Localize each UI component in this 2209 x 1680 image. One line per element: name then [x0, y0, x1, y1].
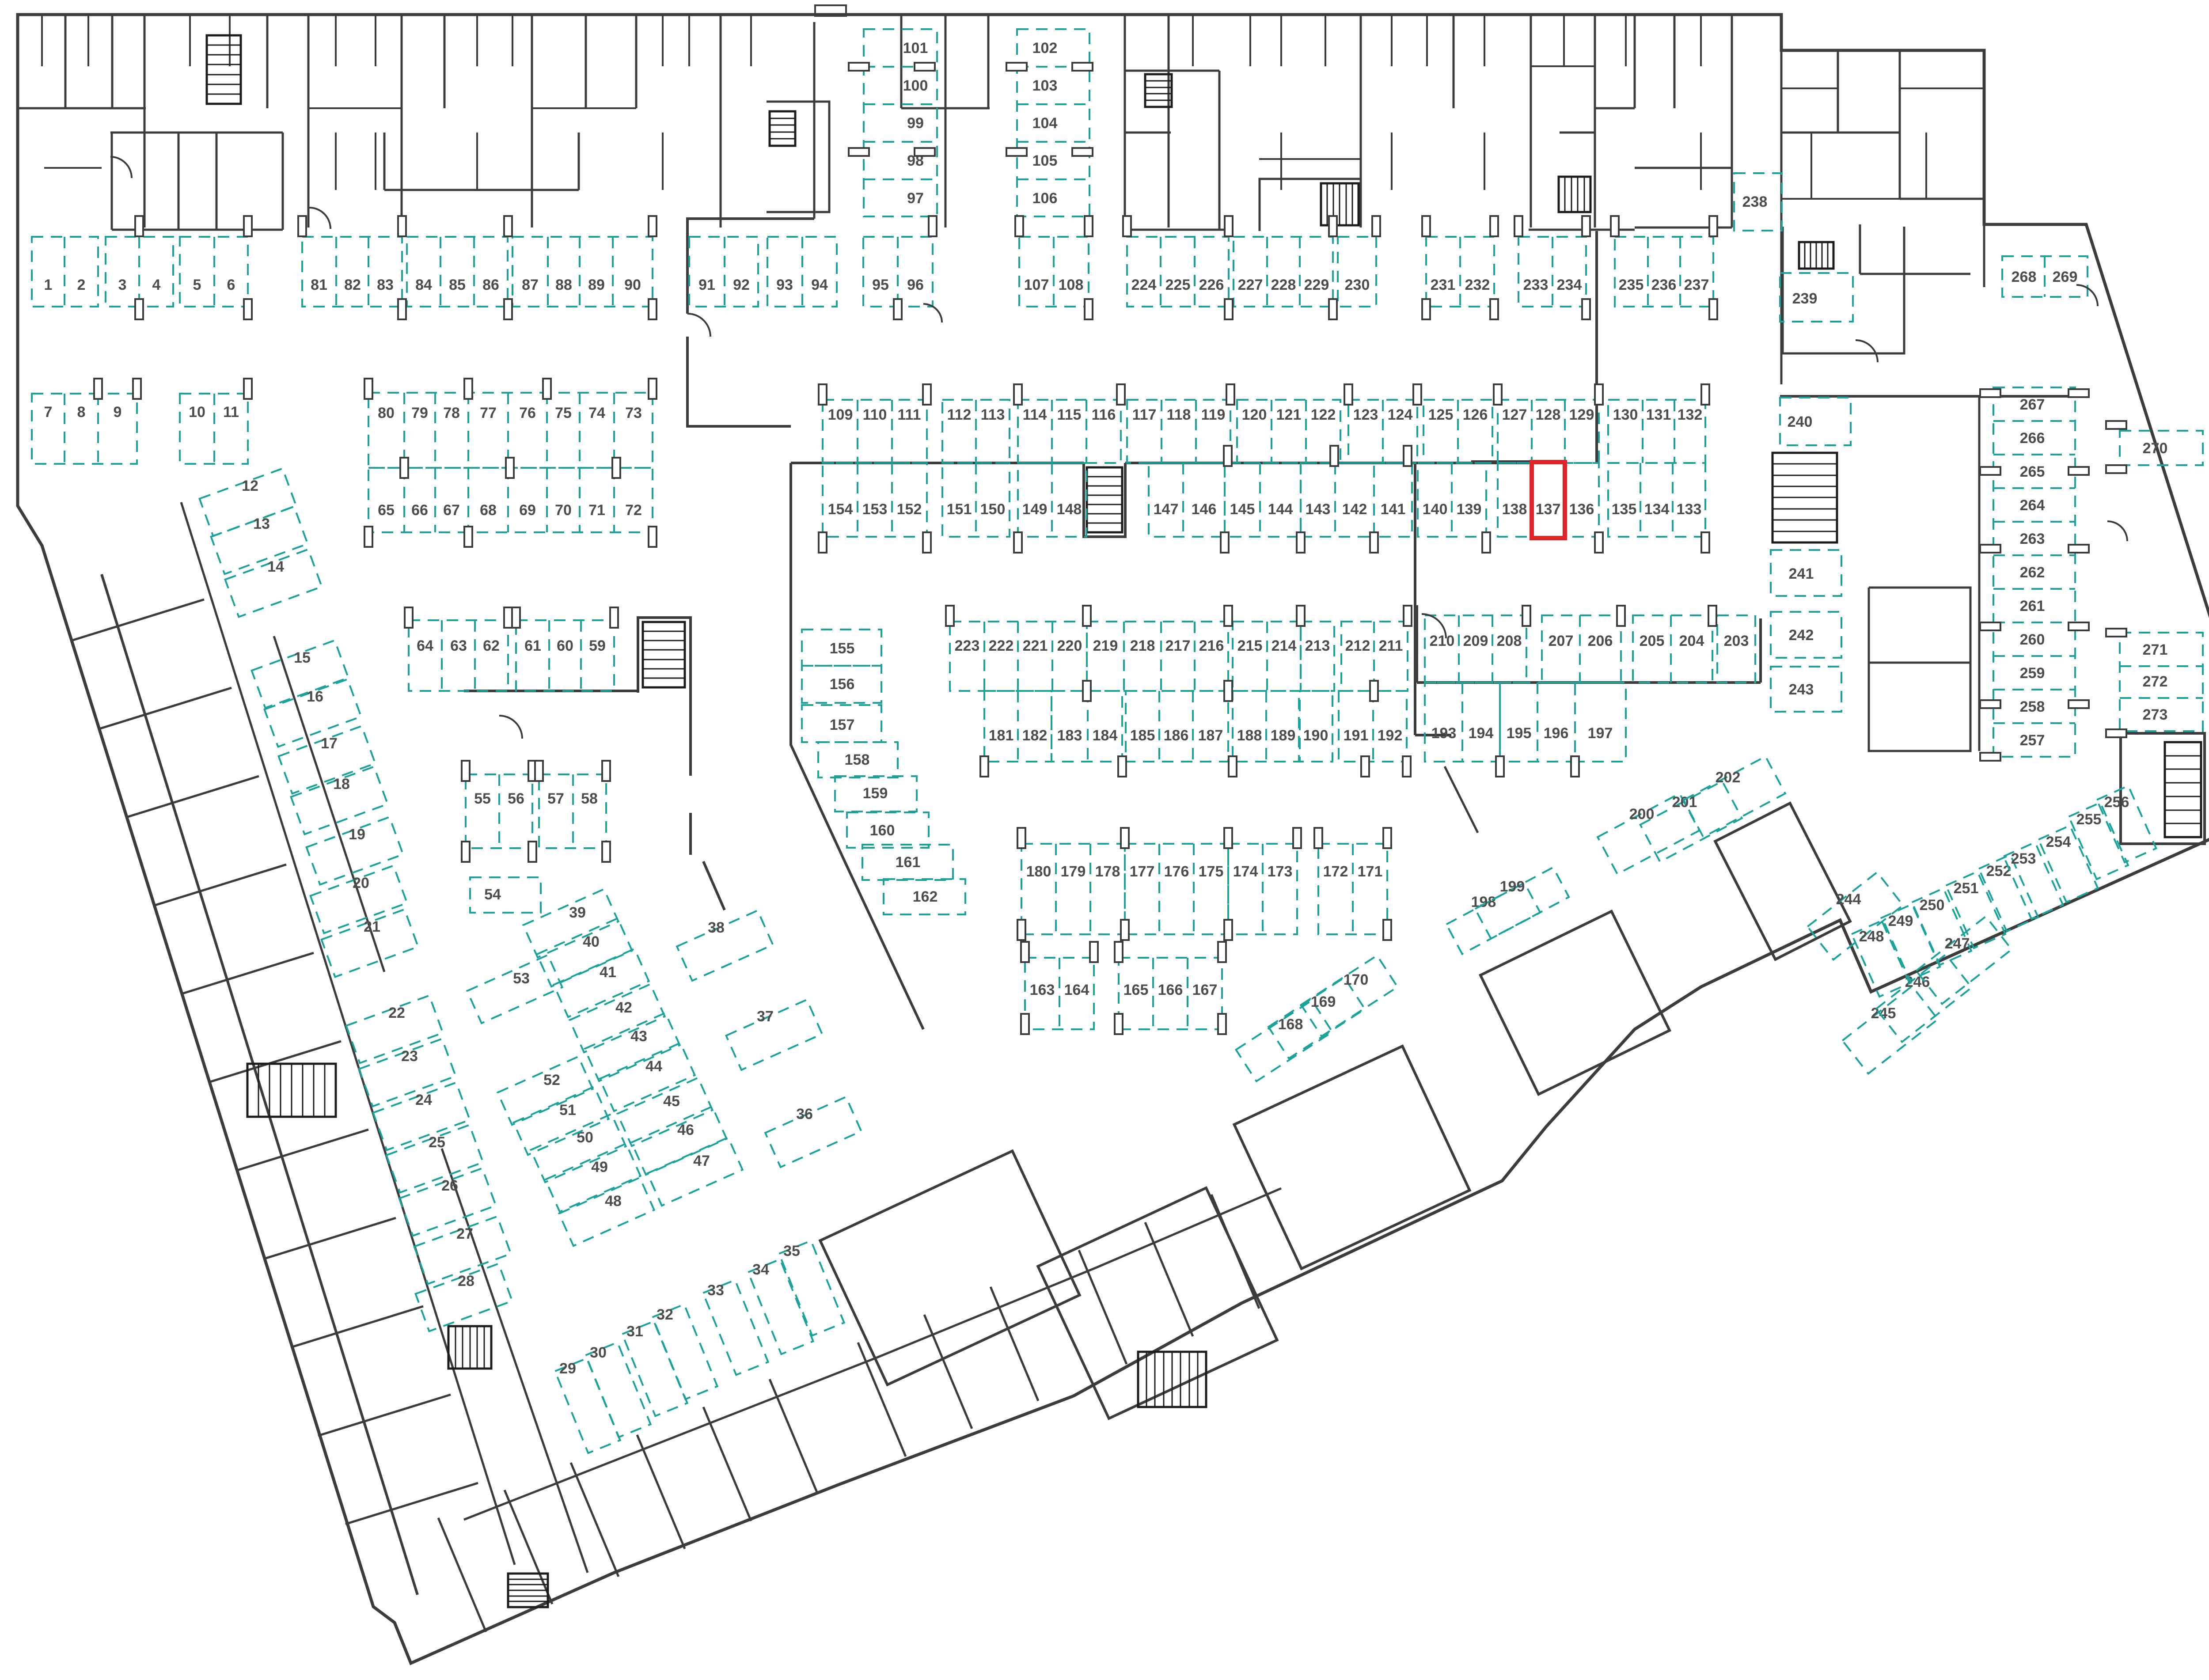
- svg-text:39: 39: [569, 904, 586, 921]
- svg-text:87: 87: [522, 277, 539, 293]
- svg-text:149: 149: [1022, 501, 1048, 518]
- svg-text:187: 187: [1198, 727, 1223, 744]
- svg-text:231: 231: [1431, 277, 1456, 293]
- svg-text:185: 185: [1130, 727, 1155, 744]
- svg-text:74: 74: [588, 405, 605, 421]
- svg-text:103: 103: [1032, 77, 1058, 94]
- svg-text:58: 58: [581, 790, 598, 807]
- svg-text:152: 152: [897, 501, 922, 518]
- svg-text:84: 84: [415, 277, 432, 293]
- svg-text:132: 132: [1678, 406, 1703, 423]
- svg-text:57: 57: [547, 790, 564, 807]
- svg-text:7: 7: [44, 404, 53, 421]
- svg-text:197: 197: [1588, 725, 1613, 742]
- svg-text:135: 135: [1612, 501, 1637, 518]
- svg-text:2: 2: [77, 277, 86, 293]
- svg-text:128: 128: [1536, 406, 1561, 423]
- svg-text:59: 59: [589, 637, 606, 654]
- svg-text:179: 179: [1061, 863, 1086, 880]
- svg-text:209: 209: [1463, 633, 1488, 649]
- svg-text:184: 184: [1093, 727, 1118, 744]
- svg-text:85: 85: [449, 277, 466, 293]
- svg-text:54: 54: [484, 886, 501, 903]
- svg-text:118: 118: [1167, 406, 1191, 423]
- svg-text:56: 56: [508, 790, 524, 807]
- svg-text:61: 61: [524, 637, 541, 654]
- svg-text:256: 256: [2104, 794, 2129, 811]
- svg-text:119: 119: [1201, 406, 1226, 423]
- svg-text:150: 150: [980, 501, 1006, 518]
- svg-text:224: 224: [1131, 277, 1157, 293]
- svg-text:215: 215: [1237, 637, 1263, 654]
- svg-text:238: 238: [1742, 193, 1768, 210]
- svg-text:35: 35: [783, 1243, 800, 1259]
- svg-text:95: 95: [872, 277, 889, 293]
- svg-text:17: 17: [321, 735, 338, 752]
- svg-text:199: 199: [1500, 878, 1525, 895]
- svg-text:120: 120: [1242, 406, 1267, 423]
- svg-text:101: 101: [903, 40, 928, 57]
- svg-text:13: 13: [253, 516, 270, 532]
- svg-text:271: 271: [2143, 641, 2168, 658]
- svg-text:53: 53: [513, 970, 530, 987]
- svg-text:18: 18: [333, 776, 350, 793]
- svg-text:237: 237: [1684, 277, 1709, 293]
- svg-text:223: 223: [955, 637, 980, 654]
- svg-text:196: 196: [1544, 725, 1569, 742]
- svg-text:73: 73: [625, 405, 642, 421]
- svg-text:48: 48: [605, 1193, 622, 1210]
- svg-text:129: 129: [1569, 406, 1594, 423]
- svg-text:78: 78: [443, 405, 460, 421]
- svg-text:63: 63: [450, 637, 467, 654]
- svg-text:30: 30: [590, 1344, 607, 1361]
- svg-text:154: 154: [828, 501, 853, 518]
- svg-text:77: 77: [480, 405, 497, 421]
- svg-text:8: 8: [77, 404, 86, 421]
- svg-text:62: 62: [483, 637, 500, 654]
- svg-text:273: 273: [2143, 706, 2168, 723]
- svg-text:191: 191: [1344, 727, 1369, 744]
- svg-text:248: 248: [1859, 928, 1884, 945]
- svg-text:75: 75: [555, 405, 572, 421]
- svg-text:81: 81: [311, 277, 327, 293]
- svg-text:19: 19: [349, 826, 365, 843]
- svg-text:153: 153: [862, 501, 888, 518]
- svg-text:1: 1: [44, 277, 53, 293]
- svg-text:110: 110: [863, 406, 887, 423]
- svg-text:257: 257: [2020, 732, 2045, 749]
- svg-text:139: 139: [1457, 501, 1482, 518]
- svg-text:158: 158: [845, 751, 870, 768]
- svg-text:258: 258: [2020, 698, 2045, 715]
- svg-text:241: 241: [1789, 565, 1814, 582]
- svg-text:26: 26: [441, 1177, 458, 1194]
- svg-text:168: 168: [1278, 1016, 1303, 1033]
- svg-text:157: 157: [830, 717, 855, 733]
- svg-text:100: 100: [903, 77, 928, 94]
- svg-text:111: 111: [898, 406, 921, 423]
- svg-text:156: 156: [830, 676, 855, 693]
- svg-text:82: 82: [344, 277, 361, 293]
- svg-text:253: 253: [2011, 850, 2036, 867]
- svg-text:6: 6: [227, 277, 235, 293]
- svg-text:263: 263: [2020, 531, 2045, 547]
- svg-text:91: 91: [698, 277, 715, 293]
- svg-text:260: 260: [2020, 631, 2045, 648]
- svg-text:102: 102: [1032, 40, 1058, 57]
- svg-text:227: 227: [1238, 277, 1263, 293]
- svg-text:166: 166: [1158, 982, 1183, 998]
- svg-text:194: 194: [1469, 725, 1494, 742]
- svg-text:225: 225: [1165, 277, 1191, 293]
- svg-text:148: 148: [1057, 501, 1082, 518]
- svg-text:89: 89: [588, 277, 605, 293]
- svg-text:80: 80: [378, 405, 395, 421]
- svg-text:151: 151: [947, 501, 972, 518]
- svg-text:239: 239: [1792, 290, 1818, 307]
- svg-text:262: 262: [2020, 564, 2045, 581]
- svg-text:115: 115: [1057, 406, 1082, 423]
- svg-text:193: 193: [1431, 725, 1457, 742]
- svg-text:38: 38: [708, 919, 725, 936]
- svg-text:173: 173: [1268, 863, 1293, 880]
- svg-text:72: 72: [625, 502, 642, 519]
- svg-text:113: 113: [981, 406, 1005, 423]
- svg-text:116: 116: [1092, 406, 1116, 423]
- svg-text:137: 137: [1536, 501, 1561, 518]
- svg-text:159: 159: [863, 785, 888, 802]
- svg-text:261: 261: [2020, 598, 2045, 614]
- svg-text:46: 46: [677, 1122, 694, 1138]
- svg-text:124: 124: [1388, 406, 1413, 423]
- svg-text:3: 3: [118, 277, 127, 293]
- svg-text:177: 177: [1130, 863, 1155, 880]
- svg-text:109: 109: [828, 406, 853, 423]
- svg-text:5: 5: [193, 277, 201, 293]
- svg-text:188: 188: [1237, 727, 1262, 744]
- svg-text:167: 167: [1192, 982, 1218, 998]
- svg-text:190: 190: [1303, 727, 1328, 744]
- svg-text:222: 222: [989, 637, 1014, 654]
- svg-text:93: 93: [776, 277, 793, 293]
- svg-text:228: 228: [1271, 277, 1296, 293]
- svg-text:244: 244: [1836, 891, 1861, 908]
- svg-text:99: 99: [907, 115, 924, 132]
- svg-text:79: 79: [411, 405, 428, 421]
- svg-text:204: 204: [1679, 633, 1704, 649]
- svg-text:165: 165: [1123, 982, 1149, 998]
- svg-text:208: 208: [1497, 633, 1522, 649]
- svg-text:44: 44: [645, 1058, 662, 1075]
- svg-text:175: 175: [1199, 863, 1224, 880]
- svg-text:162: 162: [913, 888, 938, 905]
- svg-text:106: 106: [1032, 190, 1058, 207]
- svg-text:97: 97: [907, 190, 924, 207]
- svg-text:178: 178: [1095, 863, 1120, 880]
- svg-text:189: 189: [1271, 727, 1296, 744]
- svg-text:265: 265: [2020, 463, 2045, 480]
- svg-text:68: 68: [480, 502, 497, 519]
- svg-text:34: 34: [752, 1261, 769, 1278]
- svg-text:121: 121: [1276, 406, 1302, 423]
- svg-text:104: 104: [1032, 115, 1058, 132]
- svg-text:114: 114: [1023, 406, 1047, 423]
- svg-text:107: 107: [1024, 277, 1049, 293]
- svg-text:32: 32: [657, 1306, 673, 1323]
- svg-text:161: 161: [896, 854, 921, 871]
- svg-text:182: 182: [1022, 727, 1048, 744]
- svg-text:134: 134: [1644, 501, 1670, 518]
- svg-text:9: 9: [114, 404, 122, 421]
- svg-text:169: 169: [1311, 994, 1336, 1010]
- svg-text:108: 108: [1059, 277, 1084, 293]
- svg-text:88: 88: [555, 277, 572, 293]
- svg-text:170: 170: [1344, 971, 1369, 988]
- svg-text:126: 126: [1463, 406, 1488, 423]
- svg-text:33: 33: [707, 1282, 724, 1299]
- svg-text:212: 212: [1345, 637, 1370, 654]
- svg-text:66: 66: [411, 502, 428, 519]
- svg-text:270: 270: [2143, 440, 2168, 457]
- svg-text:243: 243: [1789, 681, 1814, 698]
- svg-text:186: 186: [1164, 727, 1189, 744]
- svg-text:83: 83: [377, 277, 394, 293]
- svg-text:105: 105: [1032, 152, 1058, 169]
- svg-text:65: 65: [378, 502, 395, 519]
- svg-text:145: 145: [1230, 501, 1255, 518]
- svg-text:117: 117: [1132, 406, 1157, 423]
- svg-text:172: 172: [1323, 863, 1348, 880]
- svg-text:146: 146: [1192, 501, 1217, 518]
- svg-text:27: 27: [456, 1225, 473, 1242]
- svg-text:217: 217: [1165, 637, 1191, 654]
- svg-text:64: 64: [417, 637, 433, 654]
- svg-text:96: 96: [907, 277, 924, 293]
- svg-text:174: 174: [1233, 863, 1258, 880]
- svg-text:205: 205: [1640, 633, 1665, 649]
- svg-text:37: 37: [757, 1008, 774, 1025]
- svg-text:4: 4: [152, 277, 161, 293]
- svg-text:176: 176: [1164, 863, 1189, 880]
- svg-text:142: 142: [1342, 501, 1367, 518]
- svg-text:272: 272: [2143, 673, 2168, 690]
- svg-text:171: 171: [1358, 863, 1383, 880]
- svg-text:155: 155: [830, 640, 855, 657]
- svg-text:218: 218: [1130, 637, 1155, 654]
- svg-text:70: 70: [555, 502, 572, 519]
- svg-text:192: 192: [1378, 727, 1403, 744]
- svg-text:242: 242: [1789, 627, 1814, 644]
- svg-text:236: 236: [1651, 277, 1677, 293]
- svg-text:268: 268: [2012, 269, 2037, 285]
- svg-text:147: 147: [1154, 501, 1179, 518]
- svg-text:28: 28: [458, 1273, 474, 1289]
- svg-text:206: 206: [1588, 633, 1613, 649]
- svg-text:125: 125: [1428, 406, 1454, 423]
- svg-text:69: 69: [519, 502, 536, 519]
- svg-text:229: 229: [1304, 277, 1329, 293]
- svg-text:221: 221: [1023, 637, 1048, 654]
- svg-text:259: 259: [2020, 665, 2045, 682]
- svg-text:138: 138: [1502, 501, 1527, 518]
- svg-text:133: 133: [1677, 501, 1702, 518]
- svg-text:198: 198: [1471, 894, 1496, 910]
- svg-text:219: 219: [1093, 637, 1118, 654]
- svg-text:230: 230: [1345, 277, 1370, 293]
- svg-text:41: 41: [600, 964, 616, 981]
- svg-text:22: 22: [388, 1005, 405, 1021]
- svg-text:266: 266: [2020, 430, 2045, 447]
- svg-text:226: 226: [1199, 277, 1224, 293]
- svg-text:130: 130: [1613, 406, 1638, 423]
- svg-text:10: 10: [189, 404, 205, 421]
- svg-text:210: 210: [1430, 633, 1455, 649]
- svg-text:123: 123: [1353, 406, 1378, 423]
- svg-text:131: 131: [1646, 406, 1671, 423]
- svg-text:232: 232: [1465, 277, 1490, 293]
- svg-text:71: 71: [588, 502, 605, 519]
- svg-text:42: 42: [615, 999, 632, 1016]
- svg-text:43: 43: [630, 1028, 647, 1045]
- svg-text:36: 36: [796, 1106, 813, 1123]
- svg-text:143: 143: [1306, 501, 1331, 518]
- svg-text:24: 24: [415, 1092, 432, 1108]
- svg-text:144: 144: [1268, 501, 1293, 518]
- svg-text:20: 20: [353, 875, 369, 891]
- svg-text:183: 183: [1057, 727, 1082, 744]
- svg-text:45: 45: [663, 1093, 680, 1110]
- svg-text:250: 250: [1920, 897, 1945, 914]
- svg-text:67: 67: [443, 502, 460, 519]
- svg-text:249: 249: [1888, 913, 1913, 929]
- svg-text:269: 269: [2053, 269, 2078, 285]
- svg-text:234: 234: [1557, 277, 1582, 293]
- svg-text:195: 195: [1507, 725, 1532, 742]
- svg-text:255: 255: [2076, 811, 2102, 828]
- svg-text:51: 51: [559, 1102, 576, 1119]
- svg-text:112: 112: [947, 406, 972, 423]
- svg-text:23: 23: [401, 1048, 418, 1065]
- svg-text:16: 16: [307, 688, 323, 705]
- svg-text:94: 94: [811, 277, 828, 293]
- svg-text:40: 40: [583, 933, 600, 950]
- svg-text:12: 12: [242, 478, 258, 494]
- svg-text:213: 213: [1305, 637, 1330, 654]
- svg-text:181: 181: [989, 727, 1014, 744]
- svg-text:251: 251: [1954, 880, 1979, 897]
- svg-text:11: 11: [223, 404, 239, 421]
- svg-text:52: 52: [543, 1072, 560, 1088]
- svg-text:47: 47: [693, 1153, 710, 1169]
- svg-text:141: 141: [1381, 501, 1406, 518]
- svg-text:235: 235: [1619, 277, 1644, 293]
- svg-text:233: 233: [1523, 277, 1549, 293]
- svg-text:21: 21: [364, 918, 380, 935]
- svg-text:164: 164: [1064, 982, 1089, 998]
- svg-text:29: 29: [559, 1360, 576, 1377]
- svg-text:60: 60: [557, 637, 573, 654]
- svg-text:15: 15: [294, 649, 311, 666]
- svg-text:55: 55: [474, 790, 491, 807]
- svg-text:136: 136: [1569, 501, 1594, 518]
- svg-text:25: 25: [429, 1134, 445, 1151]
- svg-text:203: 203: [1724, 633, 1749, 649]
- svg-text:254: 254: [2046, 834, 2071, 850]
- svg-text:92: 92: [733, 277, 750, 293]
- svg-text:240: 240: [1788, 413, 1813, 430]
- svg-text:90: 90: [624, 277, 641, 293]
- svg-text:220: 220: [1057, 637, 1082, 654]
- svg-text:160: 160: [870, 822, 895, 839]
- svg-text:264: 264: [2020, 497, 2045, 514]
- svg-text:207: 207: [1549, 633, 1574, 649]
- svg-text:140: 140: [1423, 501, 1448, 518]
- svg-text:267: 267: [2020, 396, 2045, 413]
- svg-text:76: 76: [519, 405, 536, 421]
- svg-text:247: 247: [1945, 935, 1970, 952]
- svg-text:180: 180: [1026, 863, 1051, 880]
- svg-text:163: 163: [1030, 982, 1055, 998]
- svg-text:86: 86: [482, 277, 499, 293]
- svg-text:122: 122: [1311, 406, 1336, 423]
- svg-text:31: 31: [626, 1323, 643, 1340]
- svg-text:14: 14: [267, 558, 284, 575]
- svg-text:127: 127: [1502, 406, 1527, 423]
- svg-text:214: 214: [1272, 637, 1297, 654]
- svg-text:202: 202: [1716, 769, 1741, 786]
- svg-text:216: 216: [1199, 637, 1224, 654]
- svg-text:211: 211: [1379, 637, 1403, 654]
